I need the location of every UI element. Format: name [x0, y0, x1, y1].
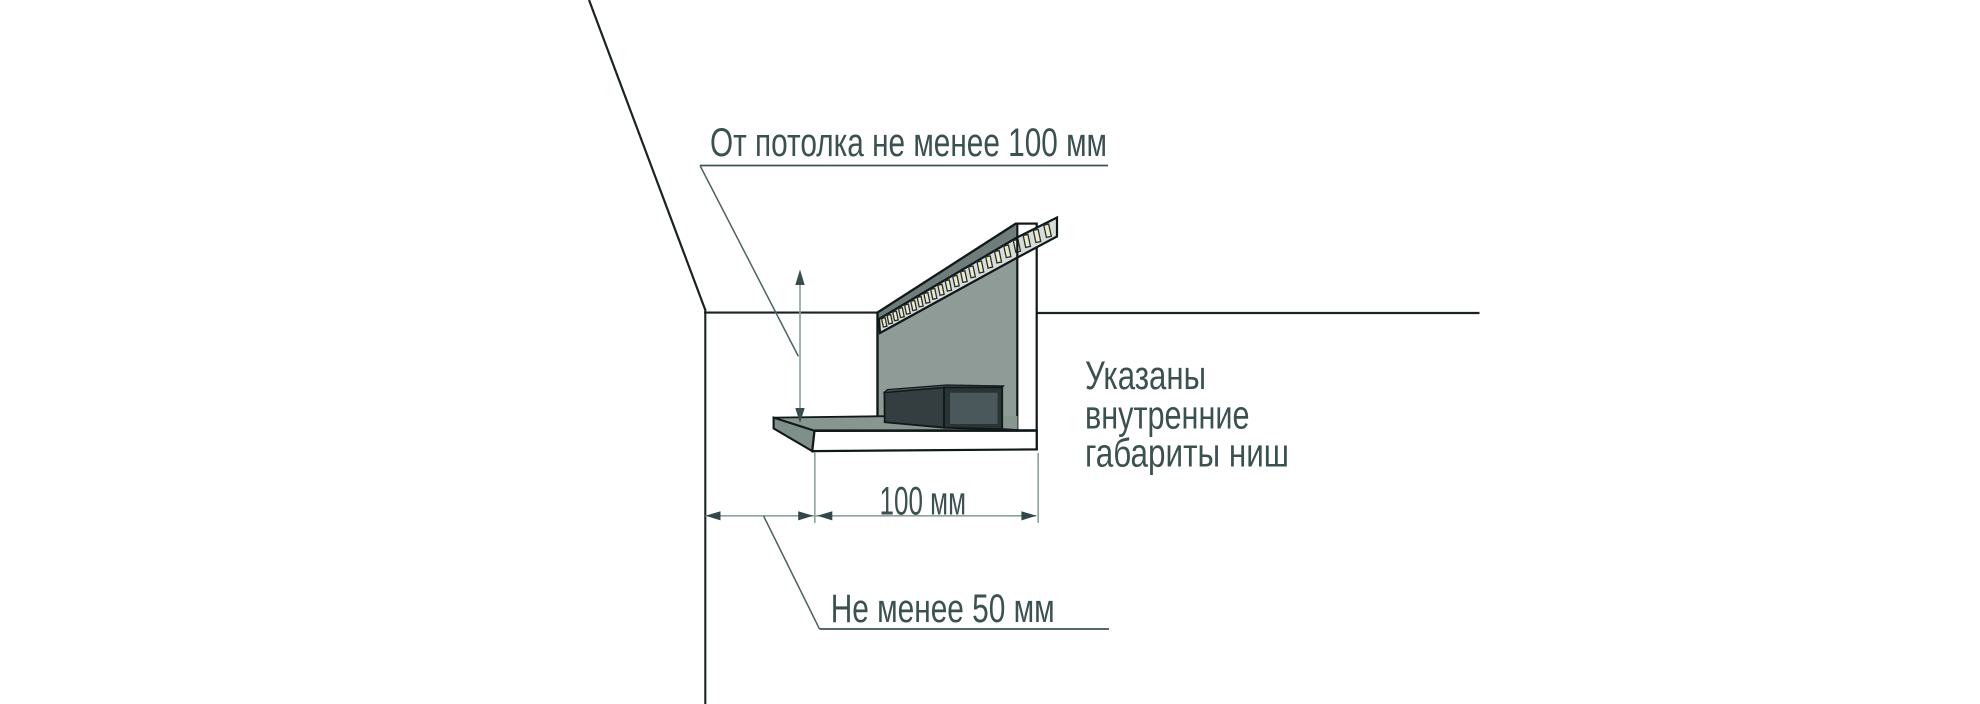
- svg-text:Не менее 50 мм: Не менее 50 мм: [831, 587, 1055, 631]
- svg-text:габариты ниш: габариты ниш: [1085, 432, 1289, 476]
- svg-text:Указаны: Указаны: [1085, 354, 1206, 398]
- svg-text:От потолка не менее 100 мм: От потолка не менее 100 мм: [710, 121, 1107, 165]
- svg-text:100 мм: 100 мм: [880, 480, 967, 524]
